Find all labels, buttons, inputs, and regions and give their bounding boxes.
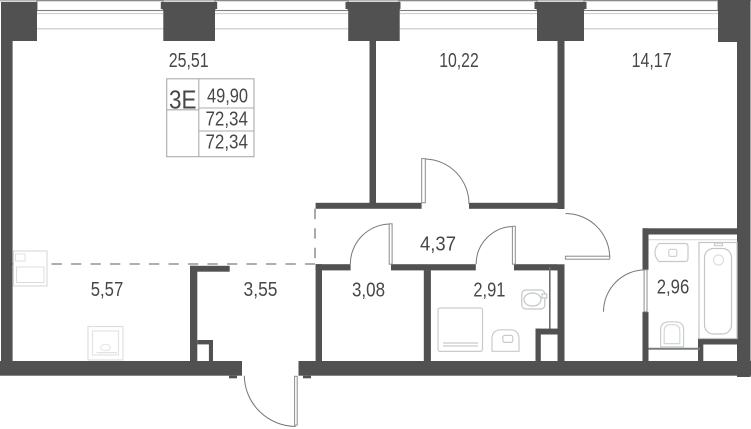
svg-text:49,90: 49,90 — [207, 86, 248, 108]
svg-text:14,17: 14,17 — [632, 50, 672, 72]
svg-text:3,08: 3,08 — [352, 280, 385, 302]
svg-text:4,37: 4,37 — [420, 234, 456, 256]
svg-text:72,34: 72,34 — [205, 132, 248, 154]
svg-text:2,96: 2,96 — [657, 277, 690, 299]
svg-text:25,51: 25,51 — [169, 50, 209, 72]
svg-text:3Е: 3Е — [169, 85, 197, 115]
svg-text:2,91: 2,91 — [473, 280, 505, 302]
svg-text:72,34: 72,34 — [205, 109, 248, 131]
svg-text:5,57: 5,57 — [91, 279, 124, 301]
svg-text:10,22: 10,22 — [439, 50, 479, 72]
svg-text:3,55: 3,55 — [244, 279, 278, 301]
